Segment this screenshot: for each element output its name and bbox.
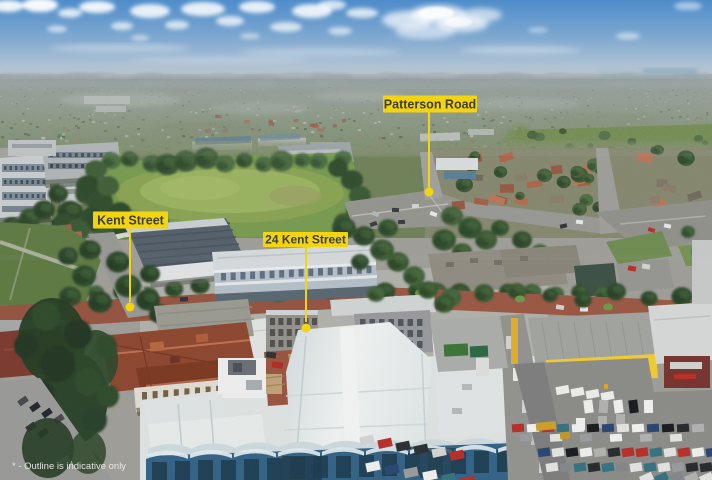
svg-text:* - Outline is indicative only: * - Outline is indicative only [12,461,126,472]
svg-text:Patterson Road: Patterson Road [384,98,476,112]
svg-text:24 Kent Street: 24 Kent Street [265,233,346,247]
svg-text:Kent Street: Kent Street [97,214,165,228]
